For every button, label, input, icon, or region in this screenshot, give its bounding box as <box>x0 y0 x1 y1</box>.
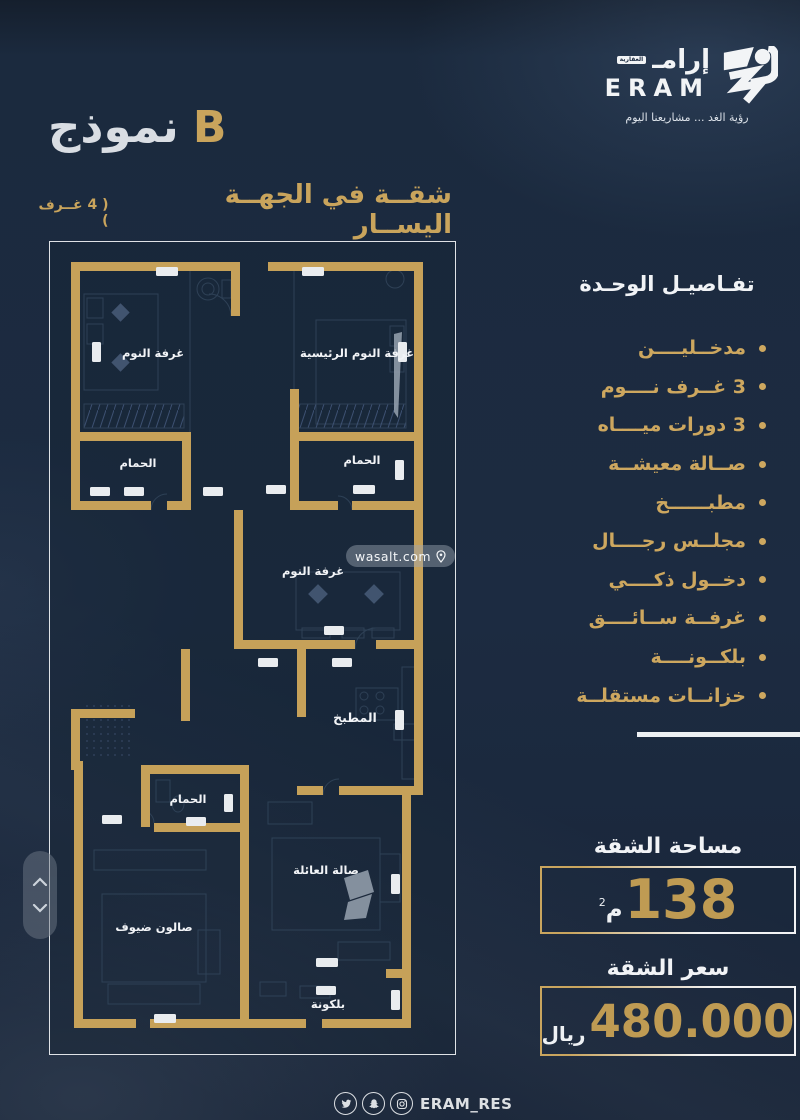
bullet-icon <box>759 615 766 622</box>
bullet-icon <box>759 461 766 468</box>
room-label: المطبخ <box>333 710 377 725</box>
room-label: الحمام <box>119 456 156 470</box>
price-value: 480.000 <box>589 999 794 1044</box>
chevron-up-icon[interactable] <box>32 877 48 886</box>
room-label: بلكونة <box>311 997 345 1012</box>
logo-arabic: إرامـ <box>652 46 710 75</box>
list-item: مجلــس رجــــال <box>576 522 766 561</box>
list-item: غرفــة ســائــــق <box>576 599 766 638</box>
list-item: صــالة معيشــة <box>576 445 766 484</box>
floor-plan: غرفة النوم غرفة النوم الرئيسية الحمام ال… <box>49 241 456 1055</box>
logo-latin: ERAM <box>605 75 710 103</box>
watermark-text: wasalt.com <box>355 549 431 564</box>
price-value-box: ريال 480.000 <box>540 986 796 1056</box>
watermark: wasalt.com <box>346 545 455 567</box>
room-label: الحمام <box>343 453 380 467</box>
list-item: دخــول ذكــــي <box>576 561 766 600</box>
bullet-icon <box>759 692 766 699</box>
list-item: خزانــات مستقلــة <box>576 676 766 715</box>
instagram-icon <box>390 1092 413 1115</box>
bullet-icon <box>759 345 766 352</box>
location-pin-icon <box>436 550 446 563</box>
bullet-icon <box>759 499 766 506</box>
logo-badge: العقارية <box>617 56 647 64</box>
list-item: 3 غــرف نــــوم <box>576 368 766 407</box>
brand-tagline: رؤية الغد ... مشاريعنا اليوم <box>598 111 776 124</box>
twitter-icon <box>334 1092 357 1115</box>
room-label: صالة العائلة <box>293 863 359 877</box>
room-label: الحمام <box>169 792 206 806</box>
area-value-box: 2م 138 <box>540 866 796 934</box>
model-letter: B <box>193 102 227 153</box>
area-heading: مساحة الشقة <box>540 834 796 859</box>
list-item: مطبــــــخ <box>576 483 766 522</box>
social-handle: ERAM_RES <box>420 1095 512 1113</box>
price-currency: ريال <box>542 1022 586 1046</box>
details-heading: تفـاصيـل الوحـدة <box>548 272 786 296</box>
room-label: غرفة النوم <box>122 346 184 361</box>
room-label: صالون ضيوف <box>115 920 192 935</box>
bullet-icon <box>759 654 766 661</box>
area-unit: 2م <box>599 896 623 923</box>
social-row: ERAM_RES <box>334 1092 512 1115</box>
bullet-icon <box>759 383 766 390</box>
room-labels: غرفة النوم غرفة النوم الرئيسية الحمام ال… <box>115 346 414 1012</box>
chevron-down-icon[interactable] <box>32 904 48 913</box>
model-word: نموذج <box>48 100 179 153</box>
list-item: مدخــليــــن <box>576 329 766 368</box>
listing-poster: نموذج B شقــة في الجهــة اليســار ( 4 غـ… <box>0 0 800 1120</box>
subtitle-text: شقــة في الجهــة اليســار <box>121 180 452 240</box>
room-label: غرفة النوم الرئيسية <box>300 346 414 361</box>
furniture-layer <box>82 270 420 1004</box>
snapchat-icon <box>362 1092 385 1115</box>
list-item: بلكــونــــة <box>576 638 766 677</box>
price-heading: سعر الشقة <box>540 956 796 981</box>
walls <box>71 262 423 1028</box>
bullet-icon <box>759 538 766 545</box>
list-item: 3 دورات ميــــاه <box>576 406 766 445</box>
details-list: مدخــليــــن 3 غــرف نــــوم 3 دورات ميـ… <box>576 329 766 715</box>
subtitle: شقــة في الجهــة اليســار ( 4 غــرف ) <box>28 180 452 240</box>
section-divider <box>637 732 800 737</box>
subtitle-note: ( 4 غــرف ) <box>28 197 109 229</box>
area-value: 138 <box>625 873 738 927</box>
room-label: غرفة النوم <box>282 564 344 579</box>
bullet-icon <box>759 576 766 583</box>
floor-plan-drawing: غرفة النوم غرفة النوم الرئيسية الحمام ال… <box>50 242 455 1054</box>
brand-logo: العقارية إرامـ ERAM رؤية الغد ... مشاريع… <box>598 46 778 124</box>
gallery-scroll-control[interactable] <box>23 851 57 939</box>
bullet-icon <box>759 422 766 429</box>
eram-logo-icon <box>720 46 778 106</box>
page-title: نموذج B <box>48 100 226 153</box>
